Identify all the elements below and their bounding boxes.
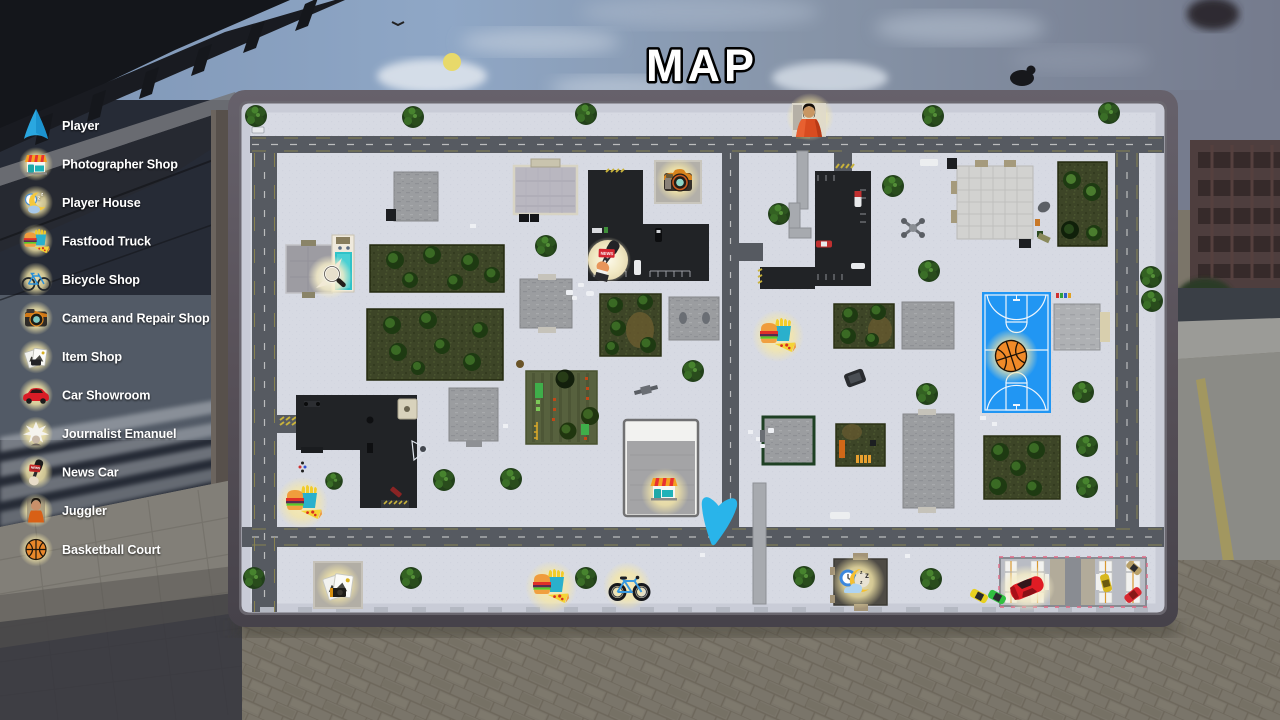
svg-text:Basketball Court: Basketball Court (62, 543, 161, 557)
svg-text:z: z (865, 571, 869, 580)
svg-text:Juggler: Juggler (62, 504, 107, 518)
svg-text:NEWS: NEWS (601, 251, 614, 256)
svg-text:Player: Player (62, 119, 99, 133)
svg-text:Journalist Emanuel: Journalist Emanuel (62, 427, 176, 441)
svg-text:NEWS: NEWS (31, 466, 40, 471)
svg-text:Item Shop: Item Shop (62, 350, 122, 364)
svg-text:MAP: MAP (646, 40, 758, 91)
svg-text:Fastfood Truck: Fastfood Truck (62, 235, 152, 249)
svg-text:Photographer Shop: Photographer Shop (62, 158, 178, 172)
svg-text:News Car: News Car (62, 466, 119, 480)
svg-text:Car Showroom: Car Showroom (62, 389, 150, 403)
svg-text:Player House: Player House (62, 196, 141, 210)
svg-text:Bicycle Shop: Bicycle Shop (62, 273, 140, 287)
svg-text:Camera and Repair Shop: Camera and Repair Shop (62, 312, 210, 326)
